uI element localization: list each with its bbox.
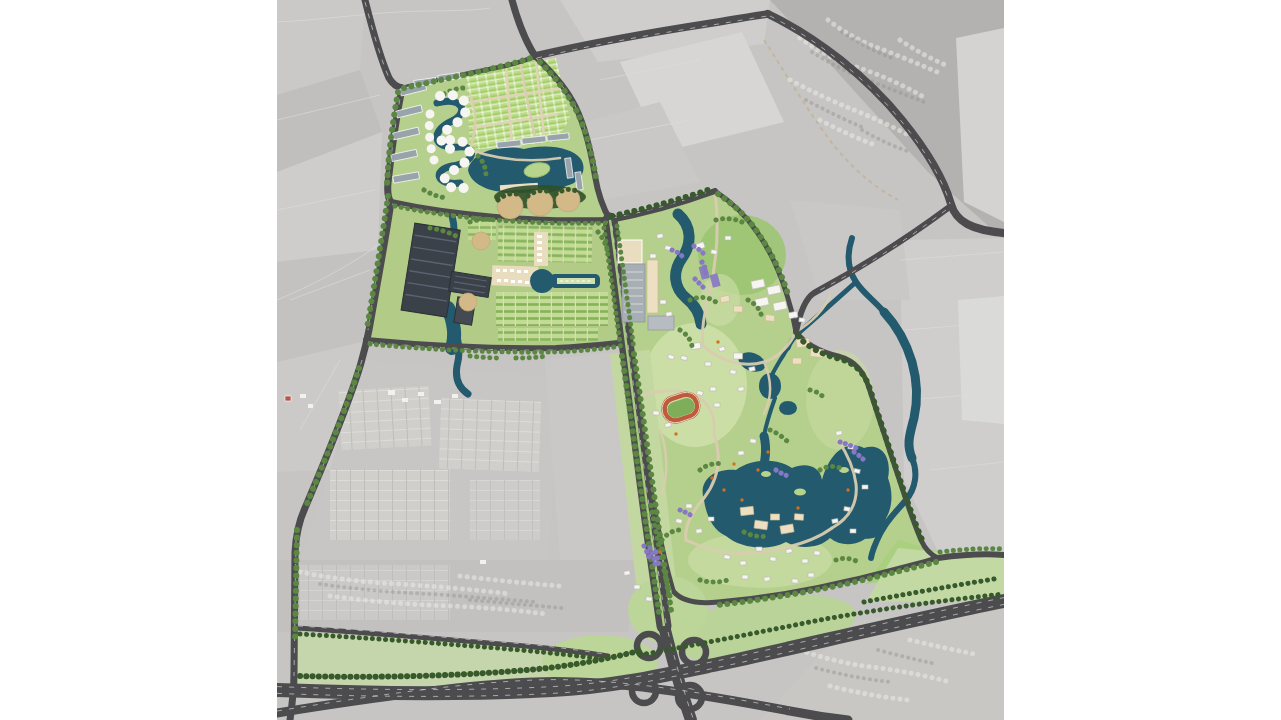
keyhole-pier (557, 278, 595, 284)
masterplan-canvas (0, 0, 1281, 720)
masterplan-screenshot (0, 0, 1281, 720)
campus-ne-pond-3 (779, 401, 797, 415)
southeast-exit-road (938, 554, 1004, 558)
red-roof-building (285, 396, 291, 401)
